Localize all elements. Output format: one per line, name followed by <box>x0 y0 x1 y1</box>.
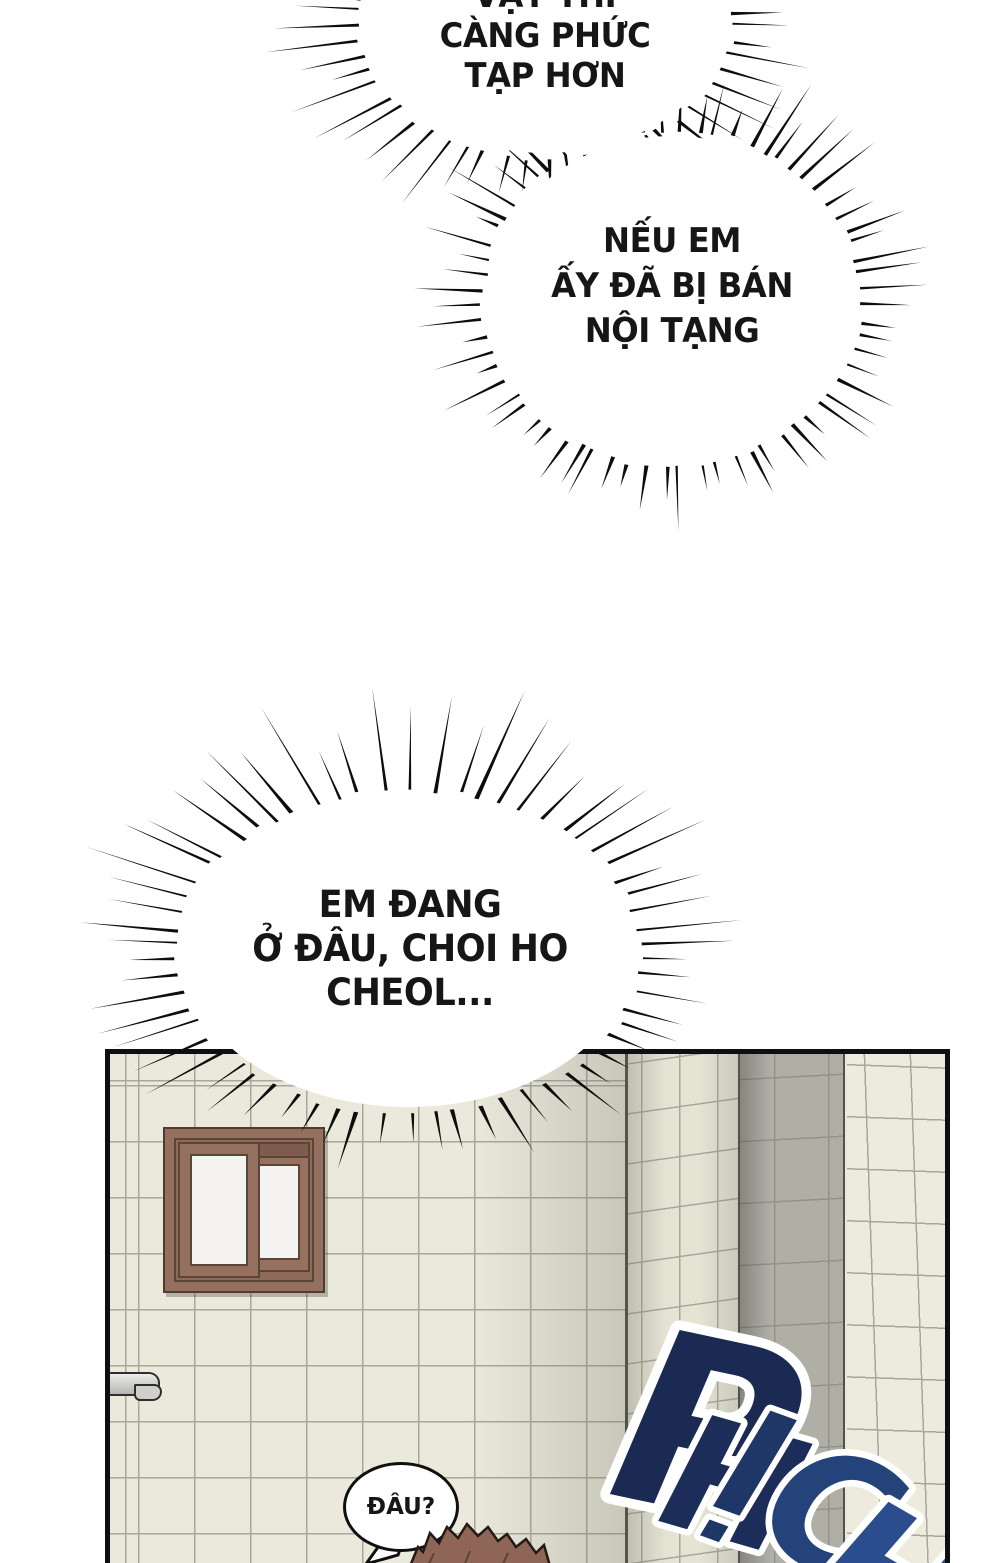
bubble2-line2: ẤY ĐÃ BỊ BÁN <box>496 264 848 309</box>
window-recess <box>174 1138 314 1282</box>
bubble3-line3: CHEOL... <box>234 971 586 1015</box>
pillar-column <box>738 1054 845 1563</box>
speech-bubble-3: EM ĐANG Ở ĐÂU, CHOI HO CHEOL... <box>234 883 586 1015</box>
bubble2-line1: NẾU EM <box>496 219 848 264</box>
bubble3-line1: EM ĐANG <box>234 883 586 927</box>
bathroom-panel: PHỊCH ĐÂU? <box>105 1049 950 1563</box>
window-left-pane <box>178 1142 260 1278</box>
window <box>163 1127 325 1293</box>
speech-bubble-1: VẬY THÌ CÀNG PHỨC TẠP HƠN <box>403 0 688 96</box>
towel-bar-end <box>134 1384 162 1401</box>
bubble1-line0: VẬY THÌ <box>403 0 688 16</box>
bubble1-line1: CÀNG PHỨC <box>403 16 688 56</box>
tiled-wall-right <box>847 1054 945 1563</box>
wall-shadow <box>470 1054 627 1563</box>
small-speech-bubble: ĐÂU? <box>343 1462 459 1552</box>
tiled-wall-mid <box>628 1054 738 1563</box>
bubble3-line2: Ở ĐÂU, CHOI HO <box>234 927 586 971</box>
speech-bubble-2: NẾU EM ẤY ĐÃ BỊ BÁN NỘI TẠNG <box>496 219 848 354</box>
window-glass-left <box>190 1154 248 1266</box>
bubble1-line2: TẠP HƠN <box>403 56 688 96</box>
bubble2-line3: NỘI TẠNG <box>496 309 848 354</box>
small-bubble-text: ĐÂU? <box>367 1494 435 1520</box>
comic-page: PHỊCH ĐÂU? VẬY THÌ CÀNG PHỨC TẠP HƠN NẾU… <box>0 0 1000 1563</box>
towel-bar <box>106 1372 160 1396</box>
